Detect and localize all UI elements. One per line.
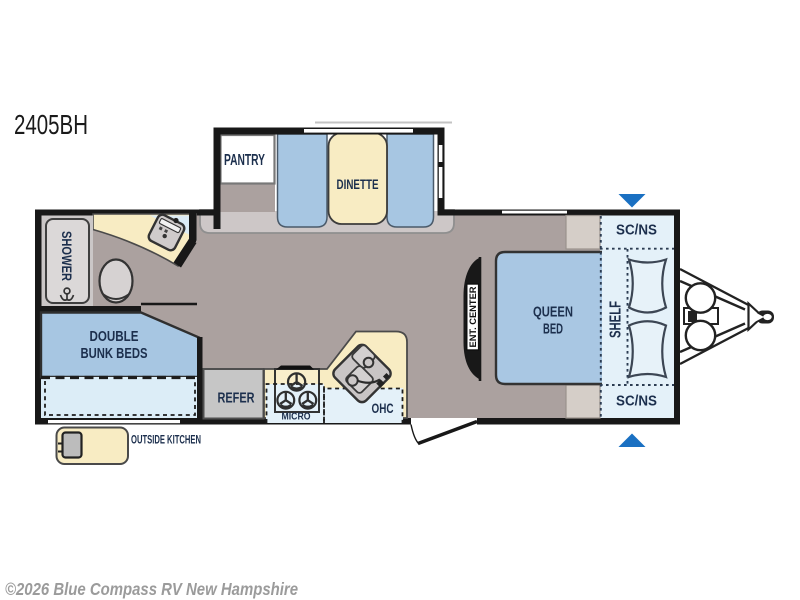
svg-text:SHELF: SHELF [608,301,625,338]
svg-text:ENT. CENTER: ENT. CENTER [468,286,479,347]
svg-text:BUNK BEDS: BUNK BEDS [81,346,148,362]
svg-text:BED: BED [543,321,563,338]
svg-text:SHOWER: SHOWER [59,231,75,281]
svg-text:©2026 Blue Compass RV New Hamp: ©2026 Blue Compass RV New Hampshire [5,579,298,599]
svg-text:2405BH: 2405BH [14,109,88,140]
svg-text:MICRO: MICRO [282,412,311,423]
svg-text:DINETTE: DINETTE [337,176,379,192]
svg-text:PANTRY: PANTRY [224,152,265,169]
svg-text:QUEEN: QUEEN [533,304,573,321]
svg-text:SC/NS: SC/NS [616,394,657,410]
svg-text:OUTSIDE KITCHEN: OUTSIDE KITCHEN [131,433,201,447]
svg-text:DOUBLE: DOUBLE [90,329,139,345]
svg-text:OHC: OHC [372,400,394,416]
svg-text:REFER: REFER [218,390,255,407]
svg-text:SC/NS: SC/NS [616,223,657,239]
